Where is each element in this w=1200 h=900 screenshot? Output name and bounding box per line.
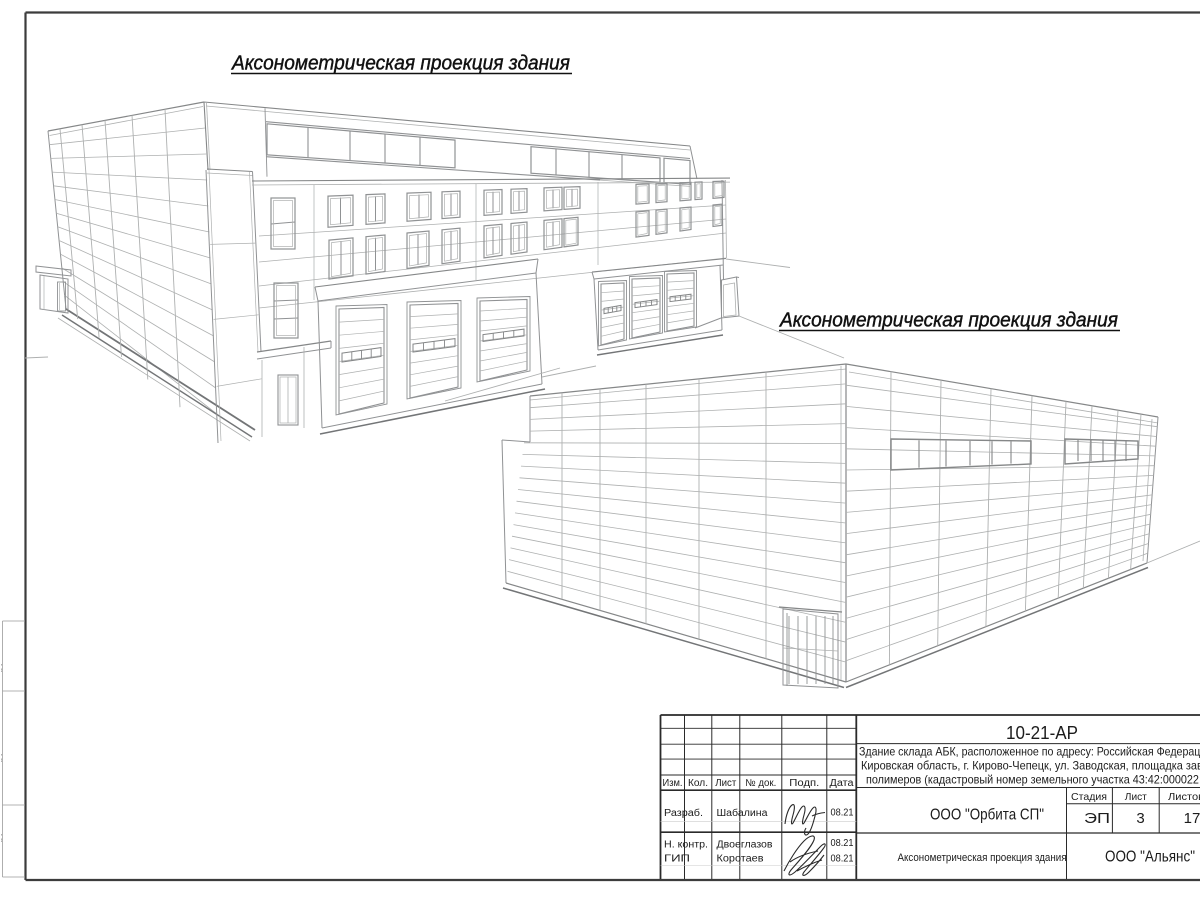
svg-text:Шабалина: Шабалина: [717, 807, 768, 819]
svg-text:Здание склада АБК, расположенн: Здание склада АБК, расположенное по адре…: [859, 746, 1200, 759]
svg-text:Подп.: Подп.: [789, 778, 819, 789]
svg-text:08.21: 08.21: [831, 854, 854, 865]
svg-text:3: 3: [1136, 810, 1144, 827]
svg-text:Аксонометрическая проекция зда: Аксонометрическая проекция здания: [230, 52, 570, 75]
svg-text:10-21-АР: 10-21-АР: [1006, 723, 1078, 743]
svg-text:17: 17: [1184, 810, 1200, 827]
svg-text:ООО "Альянс": ООО "Альянс": [1105, 849, 1195, 866]
svg-text:Кировская область, г. Кирово-Ч: Кировская область, г. Кирово-Чепецк, ул.…: [861, 760, 1200, 773]
svg-text:Коротаев: Коротаев: [717, 854, 764, 865]
svg-text:ЭП: ЭП: [1084, 810, 1110, 827]
svg-text:.. .: .. .: [0, 834, 4, 842]
svg-text:№ док.: № док.: [745, 778, 776, 789]
svg-text:Изм.: Изм.: [663, 778, 683, 789]
svg-text:ГИП: ГИП: [664, 854, 690, 865]
svg-text:Дата: Дата: [830, 778, 854, 789]
svg-text:Лист: Лист: [715, 778, 736, 789]
svg-text:Листов: Листов: [1168, 791, 1200, 803]
svg-text:Аксонометрическая проекция зда: Аксонометрическая проекция здания: [778, 309, 1118, 332]
svg-text:Н. контр.: Н. контр.: [664, 840, 708, 851]
svg-text:ООО "Орбита СП": ООО "Орбита СП": [930, 807, 1044, 824]
svg-text:Разраб.: Разраб.: [664, 807, 703, 819]
svg-text:Стадия: Стадия: [1071, 791, 1107, 803]
svg-text:Кол.: Кол.: [688, 778, 708, 789]
svg-text:Лист: Лист: [1125, 791, 1147, 803]
svg-text:.. .: .. .: [0, 754, 4, 762]
svg-text:Двоеглазов: Двоеглазов: [717, 840, 773, 851]
svg-text:полимеров (кадастровый номер з: полимеров (кадастровый номер земельного …: [866, 774, 1200, 787]
svg-text:08.21: 08.21: [831, 838, 854, 849]
svg-text:08.21: 08.21: [831, 808, 854, 819]
svg-text:Аксонометрическая проекция зда: Аксонометрическая проекция здания: [898, 852, 1067, 864]
svg-text:.. .: .. .: [0, 664, 4, 672]
